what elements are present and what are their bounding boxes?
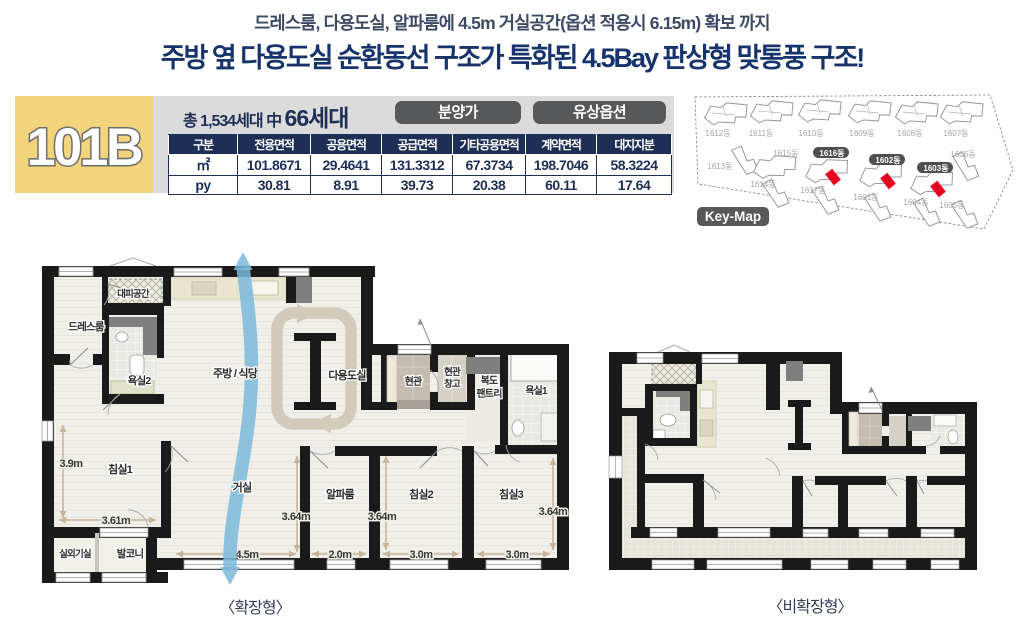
svg-text:1614동: 1614동 xyxy=(750,180,775,189)
svg-text:3.9m: 3.9m xyxy=(59,458,83,470)
svg-text:3.0m: 3.0m xyxy=(409,549,433,561)
svg-text:3.64m: 3.64m xyxy=(539,506,568,518)
svg-text:1602동: 1602동 xyxy=(875,156,901,165)
svg-text:3.64m: 3.64m xyxy=(282,511,311,523)
svg-text:1606동: 1606동 xyxy=(950,150,975,159)
svg-text:3.0m: 3.0m xyxy=(505,549,529,561)
svg-text:복도: 복도 xyxy=(481,375,498,387)
svg-text:침실3: 침실3 xyxy=(499,487,524,501)
svg-text:3.64m: 3.64m xyxy=(368,511,397,523)
svg-text:거실: 거실 xyxy=(233,480,252,494)
svg-text:1607동: 1607동 xyxy=(943,129,968,138)
svg-text:욕실2: 욕실2 xyxy=(128,374,152,387)
svg-text:1610동: 1610동 xyxy=(798,129,823,138)
svg-text:4.5m: 4.5m xyxy=(235,549,259,561)
svg-text:드레스룸: 드레스룸 xyxy=(68,320,105,333)
svg-text:창고: 창고 xyxy=(444,378,461,390)
svg-text:팬트리: 팬트리 xyxy=(476,387,502,400)
svg-text:대피공간: 대피공간 xyxy=(117,288,150,300)
svg-text:발코니: 발코니 xyxy=(117,547,144,560)
svg-text:1612동: 1612동 xyxy=(705,129,730,138)
svg-text:1609동: 1609동 xyxy=(849,129,874,138)
svg-text:현관: 현관 xyxy=(405,375,423,388)
svg-text:1613동: 1613동 xyxy=(707,162,732,171)
svg-text:침실2: 침실2 xyxy=(409,487,434,501)
svg-text:실외기실: 실외기실 xyxy=(59,548,92,560)
svg-text:다용도실: 다용도실 xyxy=(328,368,366,382)
svg-text:1615동: 1615동 xyxy=(773,149,798,158)
svg-text:1616동: 1616동 xyxy=(819,149,845,158)
svg-text:1611동: 1611동 xyxy=(749,129,774,138)
svg-text:욕실1: 욕실1 xyxy=(525,384,548,397)
svg-text:1617동: 1617동 xyxy=(800,186,825,195)
svg-text:침실1: 침실1 xyxy=(108,462,133,476)
svg-text:1608동: 1608동 xyxy=(897,129,922,138)
svg-text:1604동: 1604동 xyxy=(903,198,928,207)
svg-text:알파룸: 알파룸 xyxy=(326,487,355,501)
svg-text:주방 / 식당: 주방 / 식당 xyxy=(213,366,258,380)
svg-text:Key-Map: Key-Map xyxy=(705,209,761,224)
svg-text:2.0m: 2.0m xyxy=(328,549,352,561)
svg-text:3.61m: 3.61m xyxy=(102,515,131,527)
svg-text:1603동: 1603동 xyxy=(923,164,949,173)
svg-text:1605동: 1605동 xyxy=(939,201,964,210)
svg-text:현관: 현관 xyxy=(444,366,461,378)
svg-text:1601동: 1601동 xyxy=(853,193,878,202)
